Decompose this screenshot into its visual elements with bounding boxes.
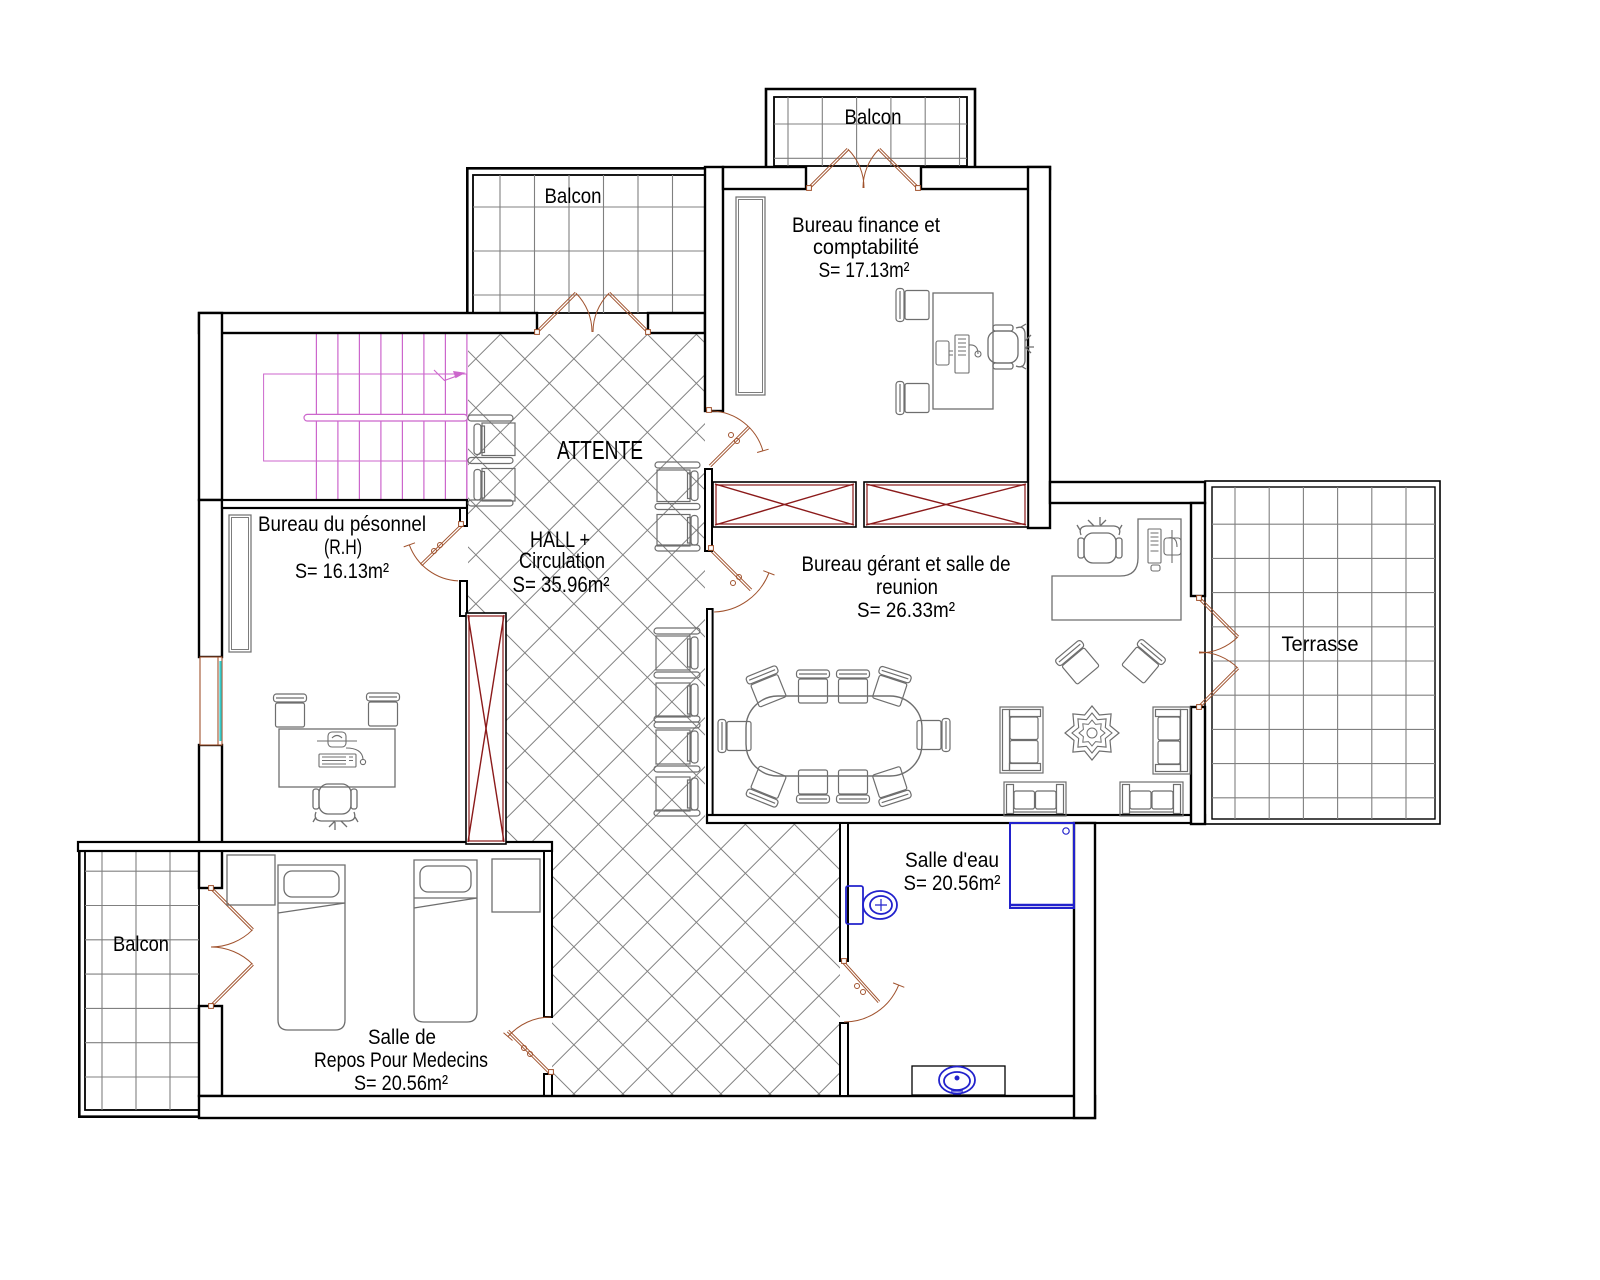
svg-text:Repos Pour Medecins: Repos Pour Medecins <box>314 1049 488 1072</box>
svg-text:S= 26.33m²: S= 26.33m² <box>857 599 955 622</box>
svg-text:comptabilité: comptabilité <box>813 236 919 259</box>
svg-text:S= 16.13m²: S= 16.13m² <box>295 560 389 583</box>
svg-text:Balcon: Balcon <box>845 106 902 129</box>
svg-text:S= 17.13m²: S= 17.13m² <box>819 259 910 282</box>
svg-text:Balcon: Balcon <box>545 185 602 208</box>
svg-text:Circulation: Circulation <box>519 548 605 573</box>
svg-text:Terrasse: Terrasse <box>1282 633 1359 656</box>
svg-text:Salle de: Salle de <box>368 1026 436 1049</box>
svg-text:S= 20.56m²: S= 20.56m² <box>354 1072 448 1095</box>
svg-text:S= 20.56m²: S= 20.56m² <box>904 872 1001 895</box>
svg-text:ATTENTE: ATTENTE <box>557 435 643 465</box>
svg-text:Bureau finance et: Bureau finance et <box>792 214 940 237</box>
svg-text:Salle d'eau: Salle d'eau <box>905 849 999 872</box>
svg-text:S= 35.96m²: S= 35.96m² <box>513 572 610 597</box>
svg-text:Balcon: Balcon <box>113 933 169 956</box>
svg-text:reunion: reunion <box>876 576 938 599</box>
svg-text:(R.H): (R.H) <box>324 536 362 559</box>
svg-text:Bureau du pésonnel: Bureau du pésonnel <box>258 513 426 536</box>
svg-text:Bureau gérant et salle de: Bureau gérant et salle de <box>802 553 1011 576</box>
